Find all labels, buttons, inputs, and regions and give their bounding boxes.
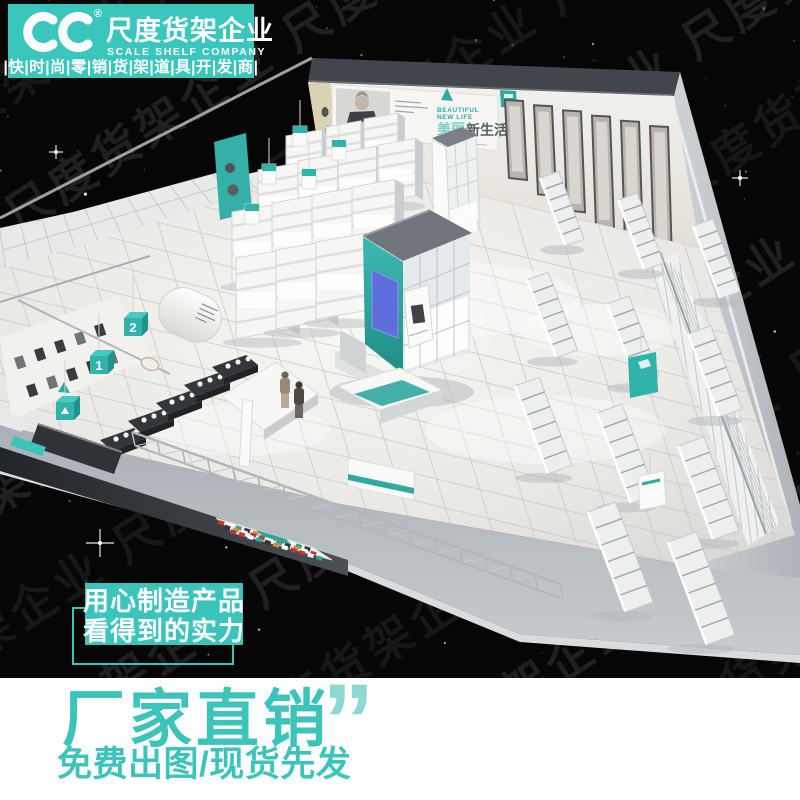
banner-line2: NEW LIFE	[437, 114, 473, 121]
vase	[322, 107, 329, 117]
banner-man-head	[355, 96, 369, 110]
white-aisle-sign	[638, 471, 666, 510]
brand-name-cn: 尺度货架企业	[106, 15, 274, 46]
footer-subtitle: 免费出图/现货先发	[57, 745, 351, 784]
brand-logo-block: ® 尺度货架企业 SCALE SHELF COMPANY |快|时|尚|零|销|…	[4, 4, 274, 78]
brand-tagline: |快|时|尚|零|销|货|架|道|具|开|发|商|	[4, 57, 259, 76]
vase	[225, 163, 235, 173]
banner-line1: BEAUTIFUL	[437, 107, 479, 114]
poster-figure	[411, 304, 425, 323]
promo-poster: 尺度货架企业 尺度货架企业 尺度货架企业 尺度货架企业 尺度货架企业 尺度货架企…	[0, 0, 800, 800]
svg-text:1: 1	[95, 358, 102, 373]
svg-text:2: 2	[129, 320, 136, 335]
badge-line2: 看得到的实力	[83, 616, 245, 646]
teal-aisle-sign	[628, 352, 658, 398]
badge-line1: 用心制造产品	[83, 586, 245, 616]
tower-screen	[372, 270, 398, 338]
registered-mark: ®	[94, 8, 102, 20]
standing-poster	[404, 285, 433, 348]
vase	[228, 185, 239, 196]
badge-glyph	[504, 94, 513, 98]
store-render-canvas: 尺度货架企业 尺度货架企业 尺度货架企业 尺度货架企业 尺度货架企业 尺度货架企…	[0, 0, 800, 800]
brand-name-en: SCALE SHELF COMPANY	[107, 46, 266, 58]
